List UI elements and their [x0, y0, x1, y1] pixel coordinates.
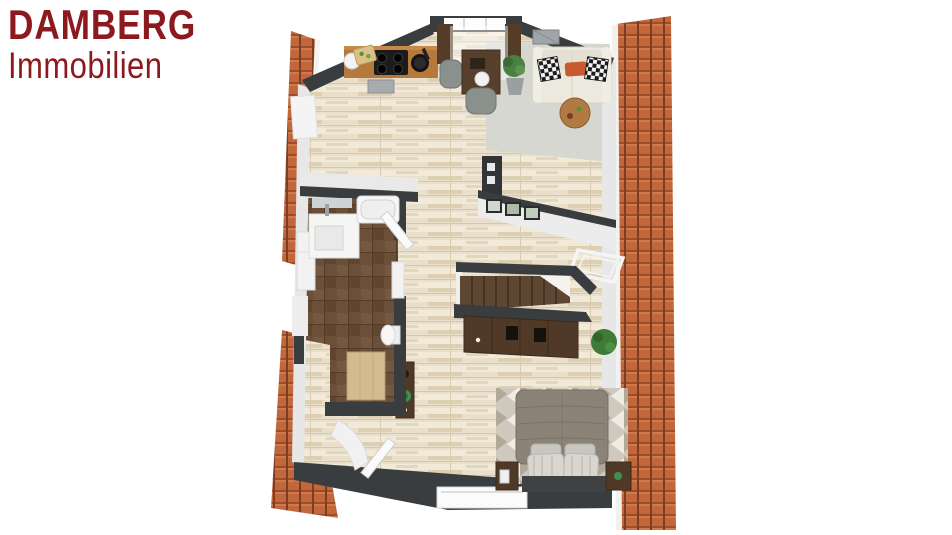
dining-chair — [466, 88, 496, 114]
nightstand-left — [496, 462, 518, 490]
nightstand-right — [606, 462, 631, 490]
plate — [475, 72, 489, 86]
bedroom — [496, 388, 631, 492]
floor-plan — [0, 0, 952, 535]
plant-hall — [591, 329, 617, 355]
left-wall-window — [292, 296, 308, 336]
coffee-table — [560, 98, 590, 128]
sideboard — [464, 316, 578, 358]
oven — [368, 80, 394, 93]
patterned-pillow — [585, 57, 609, 82]
bathroom-dresser — [347, 352, 385, 400]
checkered-pillow — [537, 56, 561, 81]
mirror — [312, 198, 352, 208]
shoes — [506, 326, 518, 340]
shoes — [534, 328, 546, 342]
dining-chair — [440, 60, 462, 88]
orange-pillow — [565, 61, 588, 77]
page: DAMBERG Immobilien — [0, 0, 952, 535]
headboard — [522, 476, 606, 492]
chimney — [291, 95, 318, 139]
bathroom-shelf — [392, 262, 404, 298]
toilet — [381, 325, 400, 345]
